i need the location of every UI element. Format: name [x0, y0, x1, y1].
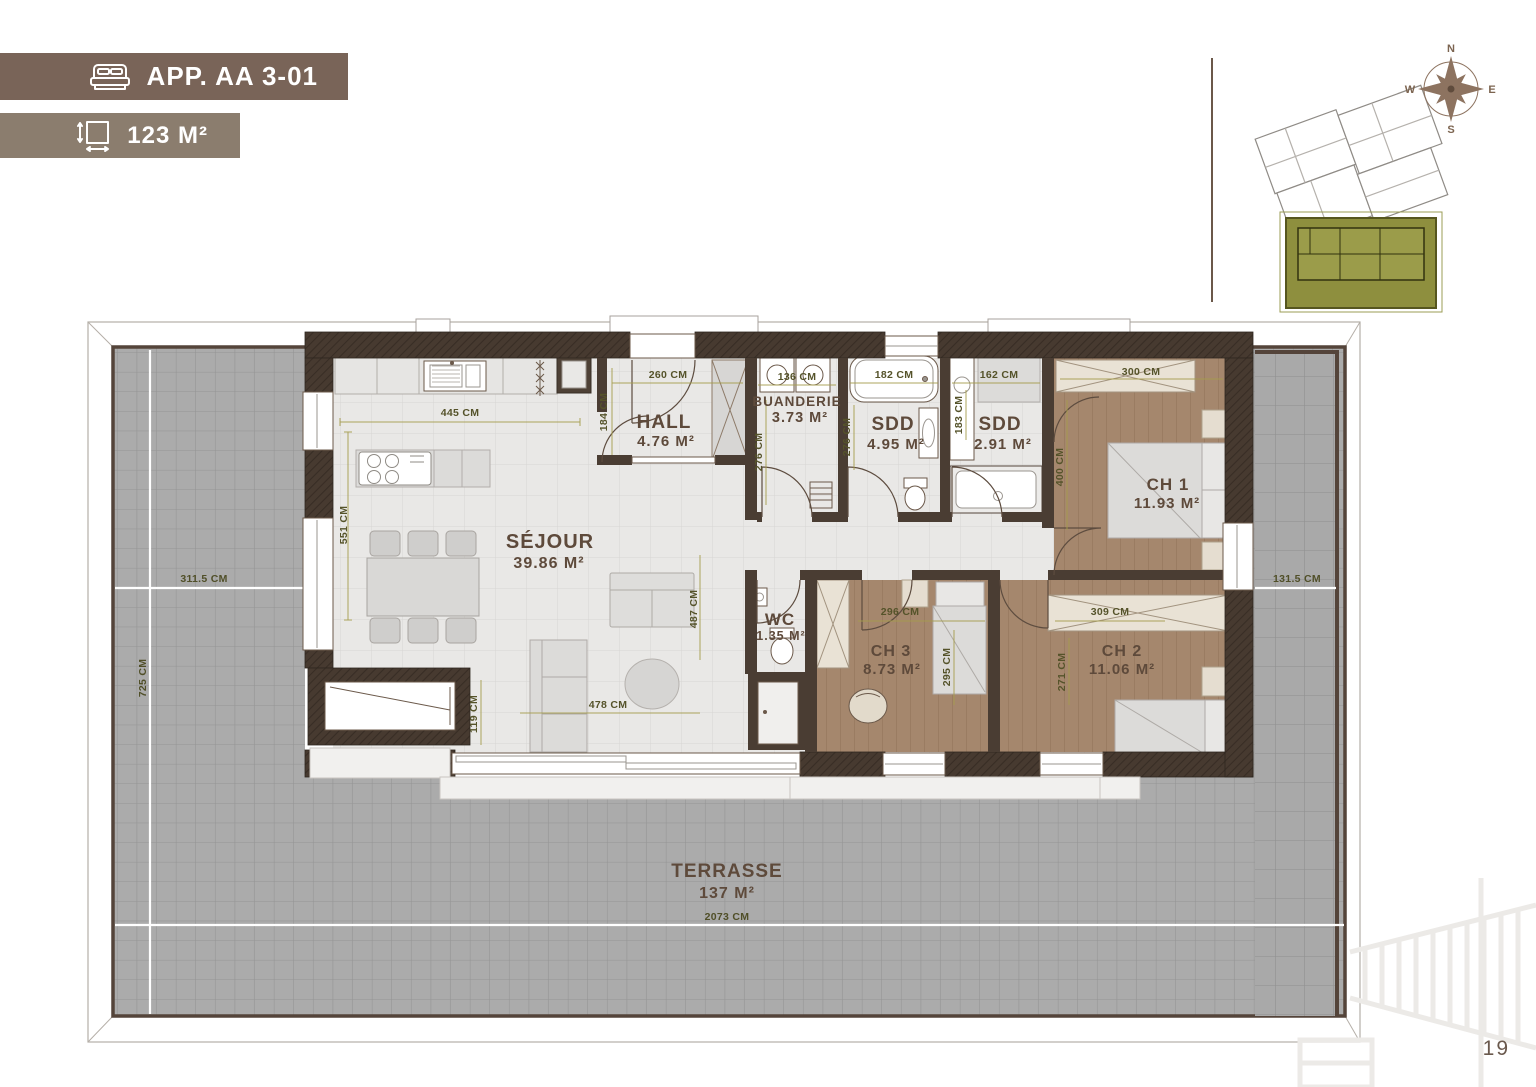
dim-sejour-width: 478 CM: [589, 699, 628, 711]
compass-east: E: [1488, 84, 1495, 96]
room-area-sdd1: 4.95 M²: [867, 436, 925, 453]
sdd1-toilet: [904, 478, 927, 510]
room-area-buanderie: 3.73 M²: [772, 410, 828, 426]
bay-window: [325, 682, 455, 730]
area-icon: [75, 119, 113, 153]
floor-plan-drawing: 445 CM 551 CM 260 CM 184 CM 136 CM 276 C…: [0, 0, 1536, 1087]
dim-terrace-right-width: 131.5 CM: [1273, 573, 1321, 585]
room-name-ch2: CH 2: [1102, 643, 1142, 660]
minimap-highlighted-unit: [1280, 212, 1442, 312]
room-area-wc: 1.35 M²: [756, 629, 805, 643]
room-area-ch2: 11.06 M²: [1089, 661, 1155, 678]
dim-kitchen-depth: 551 CM: [338, 506, 350, 545]
shower: [950, 466, 1042, 513]
dim-sdd2-depth: 183 CM: [953, 396, 965, 435]
site-plan-minimap: [1211, 58, 1472, 312]
kitchen-island: [356, 450, 490, 487]
room-area-terrasse: 137 M²: [699, 885, 755, 902]
room-name-ch3: CH 3: [871, 643, 911, 660]
room-name-hall: HALL: [637, 412, 692, 433]
ch3-chair: [849, 689, 887, 723]
room-area-hall: 4.76 M²: [637, 433, 695, 450]
dim-kitchen-width: 445 CM: [441, 407, 480, 419]
page-number: 19: [1483, 1037, 1510, 1061]
area-badge-label: 123 M²: [127, 122, 208, 150]
entry-door-opening: [630, 334, 695, 358]
hall-pocket-door: [632, 457, 715, 463]
rug: [625, 659, 679, 709]
dim-sdd1-width: 182 CM: [875, 369, 914, 381]
room-name-ch1: CH 1: [1147, 475, 1190, 494]
dim-ch1-width: 300 CM: [1122, 366, 1161, 378]
dim-sdd1-depth: 276 CM: [841, 418, 853, 457]
dim-sdd2-width: 162 CM: [980, 369, 1019, 381]
dim-ch2-width: 309 CM: [1091, 606, 1130, 618]
apartment-badge-label: APP. AA 3-01: [147, 61, 318, 92]
compass-west: W: [1405, 84, 1416, 96]
dim-terrace-left-width: 311.5 CM: [180, 573, 227, 585]
dim-ch3-width: 296 CM: [881, 606, 920, 618]
sliding-door: [452, 753, 800, 774]
room-name-wc: WC: [765, 610, 795, 629]
room-area-sejour: 39.86 M²: [513, 555, 584, 572]
sink: [424, 361, 486, 391]
floorplan-page: 445 CM 551 CM 260 CM 184 CM 136 CM 276 C…: [0, 0, 1536, 1087]
dining-table: [367, 531, 479, 643]
dim-hall-width: 260 CM: [649, 369, 688, 381]
dim-ch1-depth: 400 CM: [1054, 448, 1066, 487]
room-name-terrasse: TERRASSE: [671, 861, 782, 882]
dim-hall-depth: 184 CM: [598, 393, 610, 432]
dim-sejour-depth: 487 CM: [688, 590, 700, 629]
dim-terrace-left-height: 725 CM: [137, 659, 149, 698]
area-badge: 123 M²: [0, 113, 240, 158]
room-area-sdd2: 2.91 M²: [974, 436, 1032, 453]
room-name-sejour: SÉJOUR: [506, 530, 594, 553]
room-name-sdd1: SDD: [871, 414, 914, 435]
room-area-ch3: 8.73 M²: [863, 661, 921, 678]
dim-ch3-depth: 295 CM: [941, 648, 953, 687]
apartment-badge: APP. AA 3-01: [0, 53, 348, 100]
room-name-buanderie: BUANDERIE: [752, 394, 841, 409]
dim-ch2-depth: 271 CM: [1056, 653, 1068, 692]
room-area-ch1: 11.93 M²: [1134, 495, 1200, 512]
compass-north: N: [1447, 43, 1455, 55]
dim-buanderie-width: 136 CM: [778, 371, 817, 383]
dim-terrace-bottom-width: 2073 CM: [705, 911, 750, 923]
sofa: [530, 640, 587, 752]
dim-buanderie-depth: 276 CM: [753, 433, 765, 472]
dim-sejour-edge: 119 CM: [468, 695, 480, 733]
compass-south: S: [1447, 124, 1454, 136]
bed-icon: [87, 61, 133, 93]
hall-closet: [712, 360, 748, 460]
room-name-sdd2: SDD: [978, 414, 1021, 435]
